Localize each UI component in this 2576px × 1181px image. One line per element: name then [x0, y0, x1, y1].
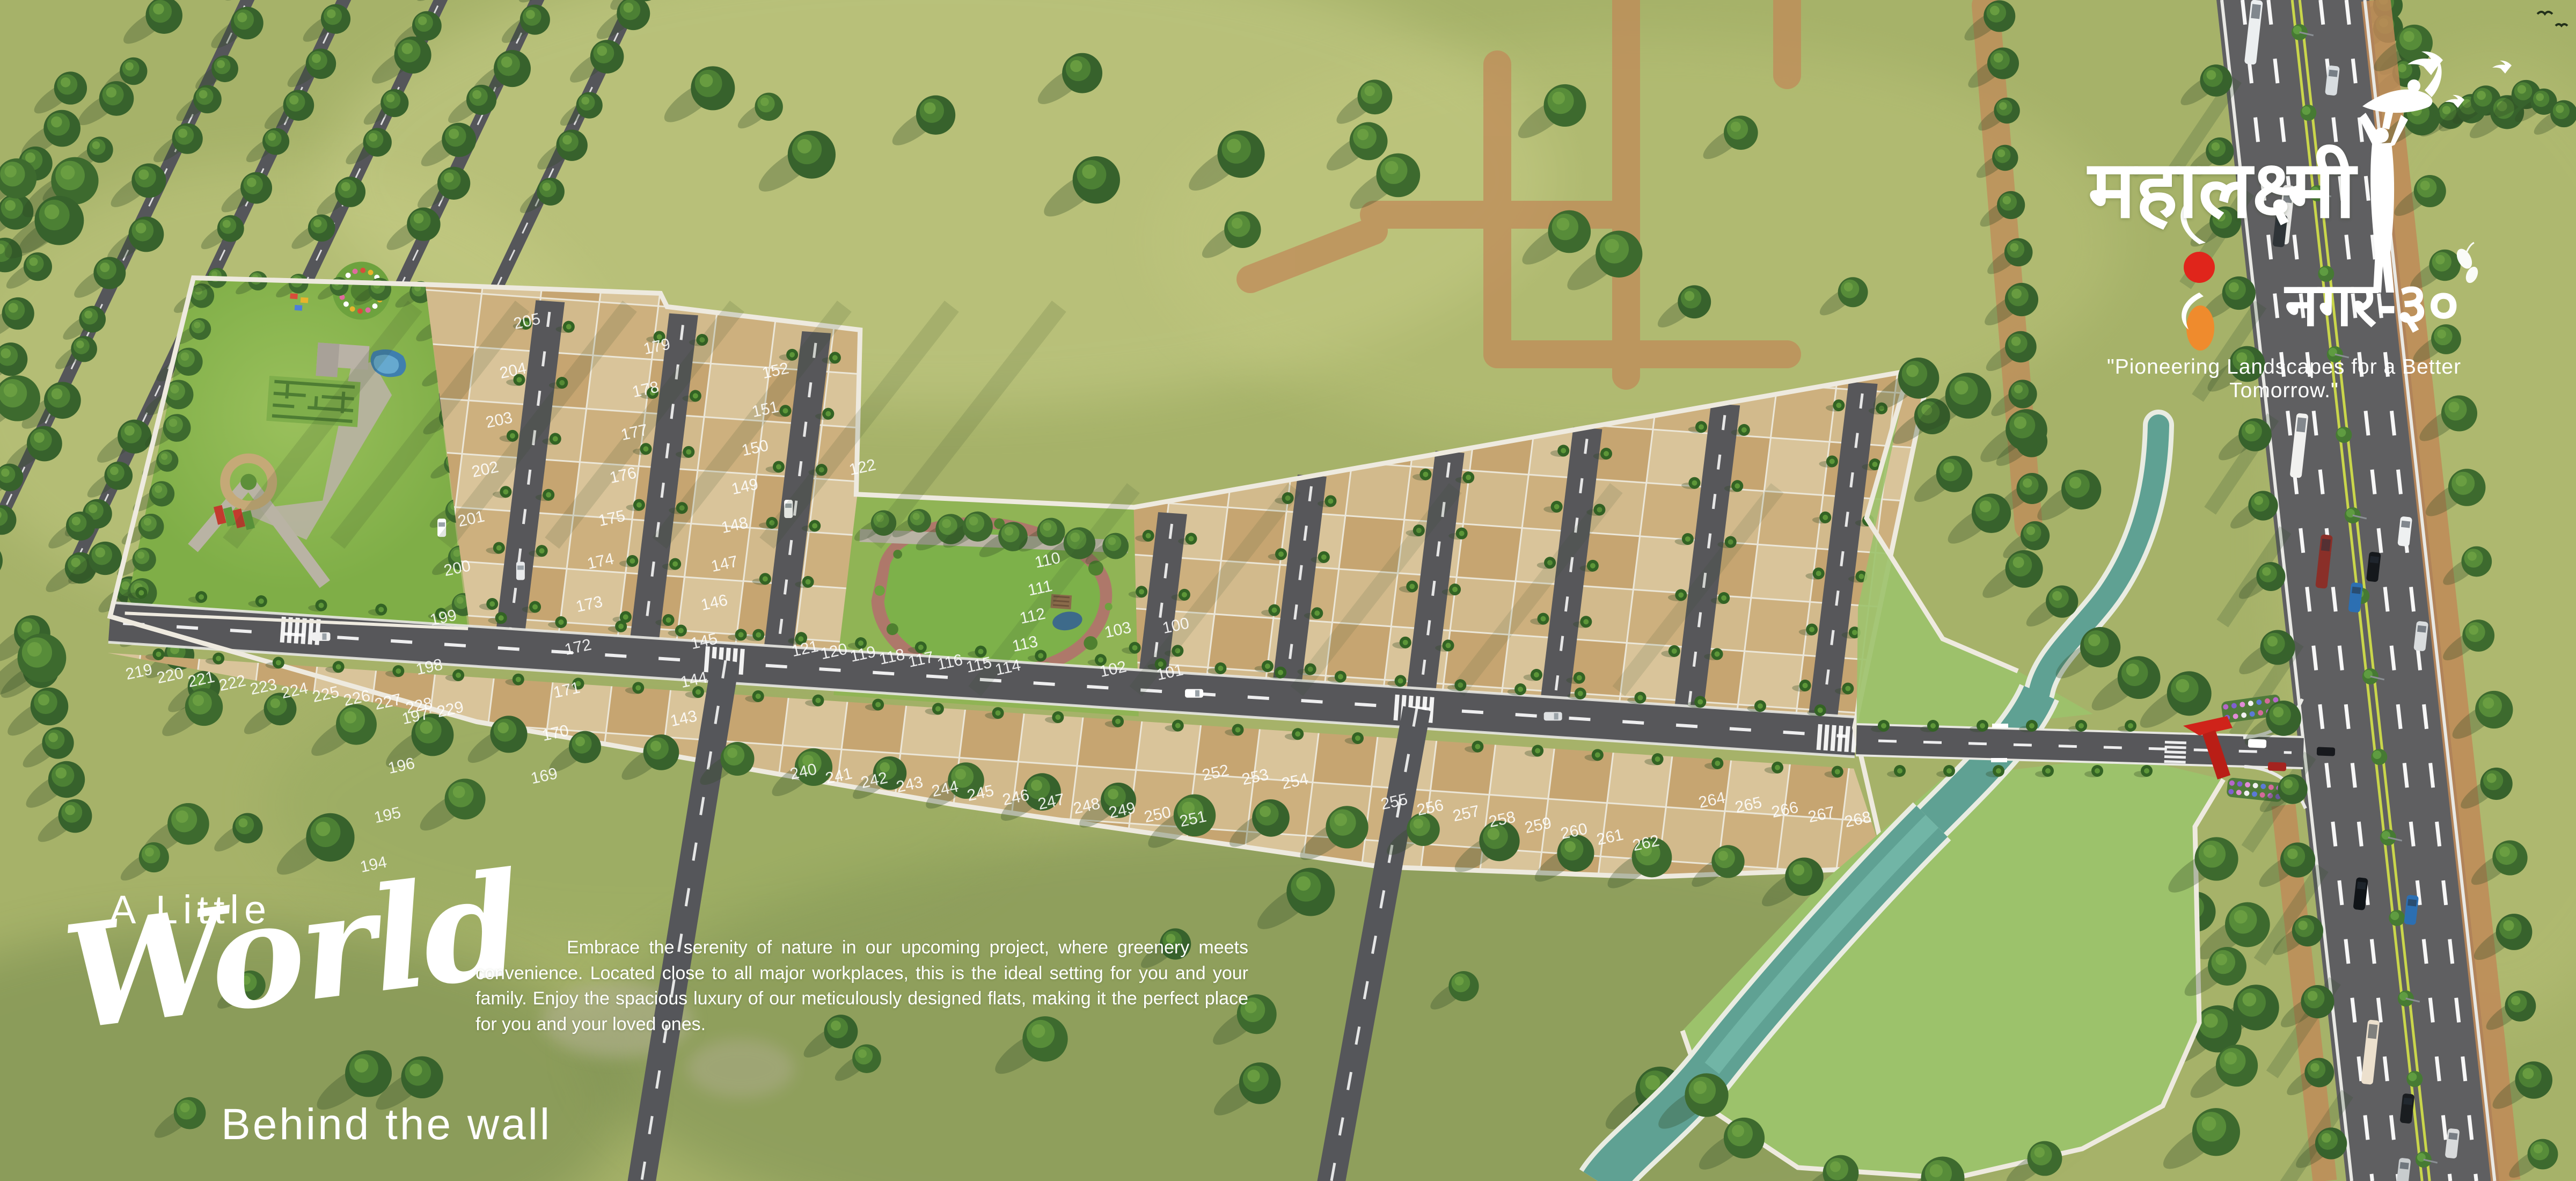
- tree-icon: [1227, 139, 1241, 153]
- tree-icon: [575, 737, 585, 746]
- tree-icon: [1357, 129, 1368, 140]
- tree-icon: [2026, 526, 2035, 535]
- tree-icon: [1645, 1075, 1660, 1090]
- tree-icon: [1414, 819, 1423, 828]
- tree-icon: [2023, 478, 2032, 487]
- tree-icon: [1943, 462, 1954, 473]
- tree-icon: [542, 183, 551, 191]
- palm-tree-icon: [1980, 723, 1985, 728]
- tree-icon: [1830, 1161, 1841, 1172]
- tree-icon: [1070, 60, 1082, 72]
- car-windshield: [1554, 713, 1558, 719]
- logo-title-devanagari: महालक्ष्मी: [2018, 150, 2426, 230]
- tree-icon: [2273, 707, 2284, 718]
- tree-icon: [1999, 102, 2007, 110]
- project-description: Embrace the serenity of nature in our up…: [475, 935, 1248, 1037]
- tree-icon: [268, 133, 276, 141]
- tree-icon: [327, 9, 336, 18]
- tree-icon: [180, 1103, 190, 1112]
- tree-icon: [1793, 864, 1804, 876]
- entry-road: [1856, 740, 2303, 753]
- vehicle-windshield: [2321, 538, 2331, 551]
- tree-icon: [313, 219, 321, 227]
- tree-icon: [2013, 557, 2024, 568]
- tree-icon: [84, 310, 92, 318]
- tree-icon: [76, 340, 84, 348]
- tree-icon: [1232, 218, 1243, 229]
- tree-icon: [2487, 773, 2497, 783]
- tree-icon: [858, 1049, 867, 1058]
- tree-icon: [145, 848, 154, 857]
- median-tree: [2373, 750, 2381, 759]
- tree-icon: [760, 98, 769, 106]
- vehicle-windshield: [2352, 587, 2361, 594]
- tree-icon: [100, 263, 109, 272]
- bindi-orange-dot: [2186, 305, 2214, 351]
- tree-icon: [61, 77, 70, 87]
- tree-icon: [700, 74, 713, 88]
- palm-tree-icon: [1946, 768, 1952, 774]
- tree-icon: [316, 822, 330, 836]
- car-icon: [2248, 739, 2267, 748]
- tree-icon: [1247, 1070, 1260, 1082]
- tree-icon: [1718, 851, 1728, 861]
- tree-icon: [2267, 636, 2278, 646]
- tree-icon: [2011, 289, 2022, 299]
- tree-icon: [52, 388, 63, 399]
- tree-icon: [34, 432, 45, 443]
- car-icon: [2317, 747, 2336, 756]
- tree-icon: [1564, 841, 1576, 852]
- tree-icon: [1455, 976, 1464, 986]
- tree-icon: [21, 622, 32, 632]
- car-icon: [1544, 712, 1562, 720]
- tree-icon: [650, 741, 661, 752]
- tree-icon: [344, 711, 356, 724]
- tree-icon: [48, 733, 58, 742]
- vehicle-windshield: [2251, 4, 2261, 19]
- tree-icon: [2556, 105, 2564, 113]
- tree-icon: [1552, 92, 1565, 105]
- palm-tree-icon: [1897, 768, 1902, 774]
- tree-icon: [1997, 149, 2006, 157]
- tree-icon: [414, 213, 424, 223]
- tree-icon: [444, 172, 453, 182]
- tree-icon: [1731, 122, 1741, 132]
- tree-icon: [354, 1059, 368, 1073]
- tree-icon: [341, 182, 350, 191]
- vehicle-windshield: [2296, 417, 2307, 432]
- tree-icon: [2204, 1014, 2218, 1027]
- palm-tree-icon: [2045, 768, 2051, 774]
- tree-icon: [2403, 31, 2414, 42]
- tree-icon: [2010, 243, 2018, 252]
- tree-icon: [193, 695, 204, 706]
- tree-icon: [247, 178, 257, 187]
- tree-icon: [369, 133, 377, 142]
- tree-icon: [136, 223, 147, 234]
- vehicle-windshield: [2417, 625, 2426, 633]
- tree-icon: [2088, 634, 2101, 646]
- tree-icon: [289, 95, 298, 104]
- tree-icon: [223, 220, 231, 228]
- tree-icon: [1990, 6, 2000, 16]
- tree-icon: [2298, 921, 2307, 930]
- logo-subtitle-devanagari: नगर-३०: [2222, 275, 2522, 335]
- car-windshield: [438, 522, 445, 527]
- tree-icon: [2035, 1147, 2045, 1157]
- tree-icon: [1296, 876, 1311, 891]
- tree-icon: [45, 205, 60, 220]
- tree-icon: [562, 135, 572, 145]
- tree-icon: [199, 90, 208, 99]
- tree-icon: [2483, 697, 2494, 709]
- tree-icon: [2284, 779, 2293, 789]
- tree-icon: [2234, 910, 2248, 923]
- tree-icon: [2215, 954, 2227, 966]
- tree-icon: [2014, 417, 2026, 429]
- tree-icon: [1556, 218, 1569, 231]
- tree-icon: [125, 62, 133, 70]
- tree-icon: [270, 698, 280, 708]
- tree-icon: [1, 469, 9, 477]
- tree-icon: [138, 170, 149, 180]
- tree-icon: [2206, 70, 2216, 80]
- tree-icon: [1994, 53, 2003, 63]
- headline-line3: Behind the wall: [221, 1099, 552, 1150]
- tree-icon: [2503, 920, 2514, 931]
- tree-icon: [92, 141, 100, 149]
- palm-tree-icon: [1881, 723, 1886, 728]
- tree-icon: [27, 642, 42, 657]
- vehicle-windshield: [2370, 556, 2379, 564]
- site-plan-poster: 2052042032022012001991981971961951941791…: [0, 0, 2576, 1181]
- tree-icon: [4, 383, 18, 397]
- tree-icon: [401, 43, 413, 54]
- median-tree: [2408, 1073, 2417, 1081]
- tree-icon: [955, 769, 966, 779]
- vehicle-windshield: [2407, 899, 2417, 907]
- tree-icon: [924, 102, 936, 114]
- palm-tree-icon: [2128, 723, 2133, 728]
- vehicle-windshield: [2401, 521, 2410, 528]
- car-icon: [1185, 689, 1203, 698]
- tree-icon: [497, 722, 509, 733]
- tree-icon: [1844, 282, 1853, 291]
- tree-icon: [106, 87, 116, 97]
- tree-icon: [1732, 1125, 1744, 1137]
- tree-icon: [55, 768, 67, 779]
- tree-icon: [2204, 845, 2216, 858]
- tree-icon: [2310, 1063, 2319, 1071]
- tree-icon: [727, 748, 737, 758]
- tree-icon: [5, 200, 16, 211]
- tree-icon: [153, 3, 164, 14]
- tree-icon: [624, 3, 634, 13]
- tree-icon: [2469, 625, 2478, 635]
- tree-icon: [2534, 1144, 2543, 1154]
- tree-icon: [29, 257, 38, 266]
- palm-tree-icon: [1996, 768, 2001, 774]
- tree-icon: [2176, 679, 2189, 692]
- tree-icon: [2456, 475, 2467, 486]
- tree-icon: [312, 54, 321, 63]
- tree-icon: [1031, 779, 1042, 791]
- tree-icon: [2262, 567, 2271, 575]
- tree-icon: [1605, 239, 1619, 253]
- tree-icon: [581, 97, 589, 105]
- tree-icon: [1385, 161, 1399, 174]
- car-icon: [516, 562, 525, 580]
- tree-icon: [797, 139, 812, 154]
- tree-icon: [2468, 552, 2477, 561]
- median-tree: [2302, 106, 2310, 115]
- tree-icon: [501, 56, 513, 68]
- tree-icon: [2052, 591, 2062, 601]
- vehicle-windshield: [2400, 1162, 2409, 1170]
- tree-icon: [9, 303, 18, 312]
- tree-icon: [1694, 1081, 1707, 1094]
- vehicle-windshield: [2448, 1133, 2457, 1140]
- tree-icon: [1082, 164, 1096, 179]
- tree-icon: [237, 12, 247, 22]
- tree-icon: [2518, 85, 2526, 93]
- car-windshield: [1195, 690, 1199, 697]
- tree-icon: [2511, 996, 2520, 1005]
- tree-icon: [239, 818, 248, 827]
- tree-icon: [72, 516, 80, 525]
- logo-tagline: "Pioneering Landscapes for a Better Tomo…: [2064, 355, 2504, 403]
- tree-icon: [176, 811, 188, 823]
- clubhouse-wing: [316, 342, 339, 377]
- tree-icon: [526, 10, 535, 19]
- bindi-red-dot: [2184, 252, 2215, 283]
- tree-icon: [2435, 255, 2445, 265]
- tree-icon: [89, 504, 97, 513]
- tree-icon: [1334, 813, 1347, 826]
- tree-icon: [2322, 1133, 2331, 1143]
- tree-icon: [2398, 64, 2406, 72]
- tree-icon: [453, 786, 465, 798]
- vehicle-windshield: [2357, 881, 2366, 890]
- tree-icon: [25, 152, 35, 163]
- median-tree: [2390, 912, 2399, 920]
- tree-icon: [1906, 365, 1919, 377]
- tree-icon: [1685, 291, 1695, 301]
- tree-icon: [2254, 496, 2263, 505]
- palm-tree-icon: [1930, 723, 1936, 728]
- vehicle-windshield: [2368, 1024, 2378, 1039]
- tree-icon: [1955, 381, 1968, 395]
- tree-icon: [2011, 337, 2021, 346]
- palm-tree-icon: [2029, 723, 2035, 728]
- car-windshield: [517, 565, 524, 570]
- tree-icon: [2202, 1117, 2216, 1131]
- palm-tree-icon: [2079, 723, 2084, 728]
- tree-icon: [597, 46, 607, 56]
- tree-icon: [2308, 991, 2318, 1001]
- tree-icon: [2287, 849, 2298, 859]
- tree-icon: [2522, 1068, 2534, 1079]
- car-windshield: [322, 633, 326, 640]
- tree-icon: [4, 165, 16, 177]
- vehicle-windshield: [2329, 70, 2338, 77]
- tree-icon: [2069, 477, 2081, 489]
- tree-icon: [51, 116, 62, 128]
- tree-icon: [2003, 196, 2011, 205]
- car-icon: [2268, 762, 2287, 771]
- tree-icon: [2536, 93, 2544, 101]
- tree-icon: [1108, 789, 1118, 799]
- tree-icon: [2477, 91, 2486, 100]
- tree-icon: [386, 94, 395, 103]
- tree-icon: [95, 548, 105, 558]
- median-tree: [2337, 428, 2346, 437]
- tree-icon: [472, 90, 481, 99]
- palm-tree-icon: [2144, 768, 2149, 774]
- tree-icon: [125, 426, 135, 436]
- tree-icon: [1260, 806, 1271, 817]
- tree-icon: [1, 348, 11, 359]
- tree-icon: [178, 129, 187, 138]
- tree-icon: [217, 60, 225, 68]
- tree-icon: [2014, 385, 2023, 393]
- tree-icon: [1930, 1164, 1943, 1177]
- tree-icon: [418, 16, 427, 25]
- vehicle-windshield: [2403, 1098, 2412, 1105]
- palm-tree-icon: [2095, 768, 2100, 774]
- tree-icon: [2245, 424, 2255, 434]
- tree-icon: [2499, 847, 2510, 857]
- tree-icon: [2448, 402, 2459, 412]
- tree-icon: [65, 805, 75, 815]
- tree-icon: [2243, 993, 2257, 1007]
- tree-icon: [1980, 500, 1992, 512]
- tree-icon: [449, 129, 459, 139]
- tree-icon: [409, 1063, 422, 1076]
- tree-icon: [110, 466, 119, 475]
- tree-icon: [61, 165, 75, 179]
- car-icon: [312, 632, 330, 641]
- tree-icon: [2224, 1052, 2237, 1065]
- rocky-patch: [687, 1039, 794, 1098]
- tree-icon: [1365, 86, 1375, 96]
- tree-icon: [2126, 664, 2139, 676]
- tree-icon: [2442, 106, 2451, 114]
- tree-icon: [38, 694, 49, 705]
